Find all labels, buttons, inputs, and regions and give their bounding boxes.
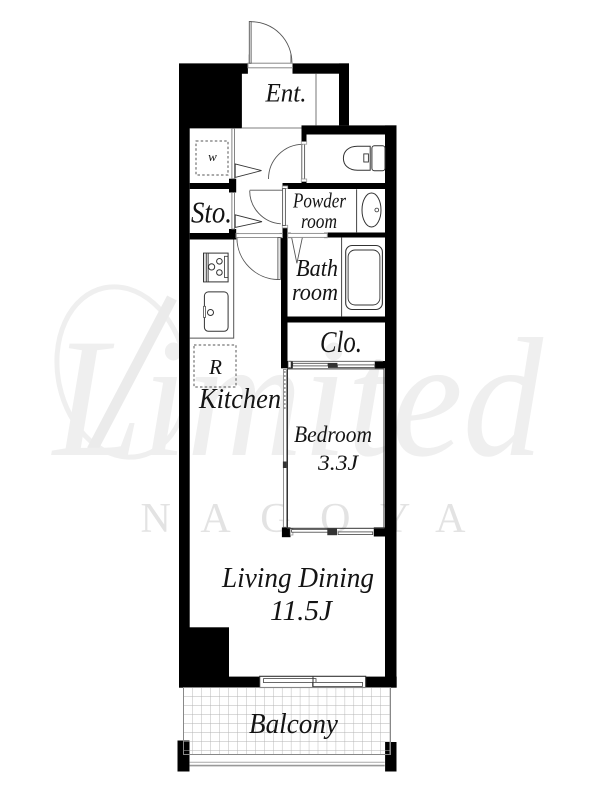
svg-text:Living Dining: Living Dining bbox=[221, 563, 374, 594]
svg-text:room: room bbox=[301, 209, 337, 233]
svg-text:w: w bbox=[208, 149, 217, 164]
svg-text:11.5J: 11.5J bbox=[270, 596, 334, 627]
svg-text:Kitchen: Kitchen bbox=[198, 384, 281, 415]
svg-text:Sto.: Sto. bbox=[191, 195, 232, 230]
svg-text:Ent.: Ent. bbox=[265, 79, 307, 108]
svg-text:room: room bbox=[292, 280, 338, 306]
svg-text:Bedroom: Bedroom bbox=[294, 422, 372, 447]
svg-text:Bath: Bath bbox=[296, 256, 338, 282]
svg-text:Balcony: Balcony bbox=[249, 709, 339, 740]
svg-text:Limited: Limited bbox=[51, 304, 544, 492]
svg-text:3.3J: 3.3J bbox=[317, 450, 359, 475]
svg-text:R: R bbox=[208, 355, 222, 379]
svg-text:Clo.: Clo. bbox=[320, 324, 362, 359]
